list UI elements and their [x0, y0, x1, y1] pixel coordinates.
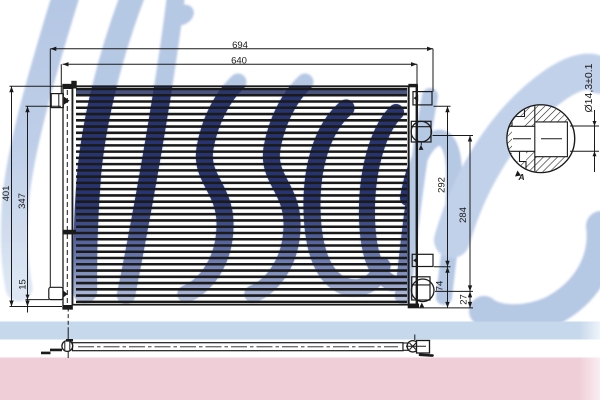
svg-text:Ø14,3±0.1: Ø14,3±0.1: [583, 63, 595, 112]
svg-text:284: 284: [458, 207, 469, 223]
svg-text:27: 27: [459, 294, 470, 305]
svg-text:15: 15: [18, 279, 29, 290]
svg-text:694: 694: [232, 40, 248, 51]
svg-text:292: 292: [437, 177, 448, 193]
svg-text:640: 640: [231, 55, 247, 66]
svg-text:401: 401: [1, 186, 12, 202]
svg-text:74: 74: [435, 281, 446, 292]
svg-text:347: 347: [17, 193, 28, 209]
